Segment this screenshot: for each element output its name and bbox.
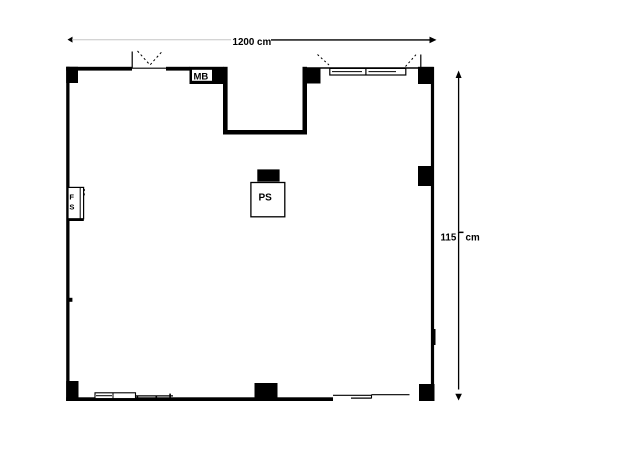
svg-text:S: S [69,203,74,212]
svg-text:115: 115 [441,232,457,243]
svg-text:F: F [69,193,74,202]
svg-text:cm: cm [466,232,480,243]
svg-text:PS: PS [259,193,273,204]
svg-text:1200 cm: 1200 cm [233,37,272,48]
svg-text:MB: MB [194,72,209,83]
